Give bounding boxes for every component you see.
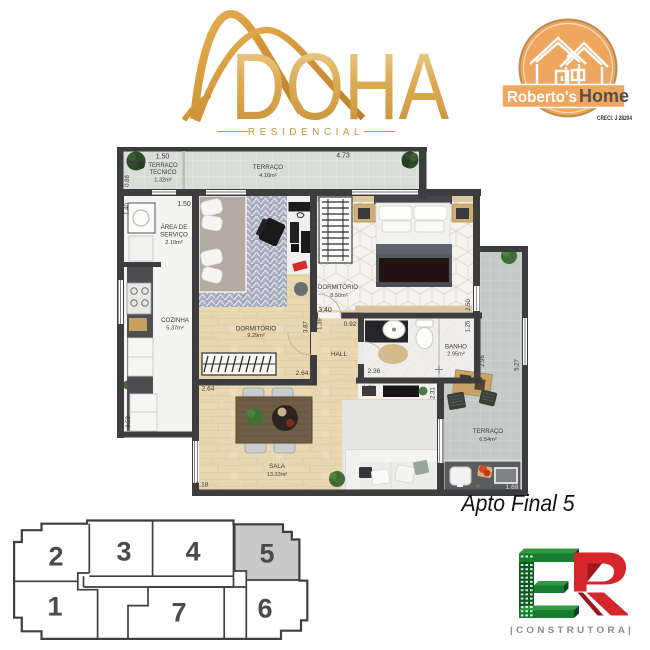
svg-text:ÁREA DE: ÁREA DE xyxy=(161,224,188,231)
svg-text:TERRAÇO: TERRAÇO xyxy=(473,428,503,435)
svg-text:13.33m²: 13.33m² xyxy=(267,472,288,478)
svg-text:1.50: 1.50 xyxy=(177,201,191,208)
svg-text:RESIDENCIAL: RESIDENCIAL xyxy=(248,127,364,138)
svg-text:2.10m²: 2.10m² xyxy=(165,240,183,246)
svg-text:5.27: 5.27 xyxy=(515,359,521,371)
svg-text:|CONSTRUTORA|: |CONSTRUTORA| xyxy=(510,625,634,636)
svg-text:2.96: 2.96 xyxy=(480,355,486,367)
svg-text:1.50: 1.50 xyxy=(156,154,170,161)
svg-text:TECNICO: TECNICO xyxy=(150,170,177,176)
svg-text:HALL: HALL xyxy=(331,351,348,358)
svg-text:SALA: SALA xyxy=(269,463,286,470)
svg-text:BANHO: BANHO xyxy=(445,344,467,351)
svg-text:SERVIÇO: SERVIÇO xyxy=(160,232,188,239)
svg-text:1.32m²: 1.32m² xyxy=(154,178,172,184)
svg-text:COZINHA: COZINHA xyxy=(161,317,190,324)
svg-text:0.92: 0.92 xyxy=(344,321,357,328)
svg-text:1.40: 1.40 xyxy=(125,203,131,215)
svg-text:0.90: 0.90 xyxy=(484,247,497,254)
svg-text:1.25: 1.25 xyxy=(466,320,472,332)
svg-text:4.16m²: 4.16m² xyxy=(259,173,277,179)
svg-text:7: 7 xyxy=(171,598,186,628)
svg-text:1.39: 1.39 xyxy=(318,318,324,330)
svg-text:4: 4 xyxy=(185,537,200,567)
svg-text:5: 5 xyxy=(259,539,274,569)
svg-text:Home: Home xyxy=(579,85,629,106)
svg-text:2.95m²: 2.95m² xyxy=(447,352,465,358)
svg-text:3.58: 3.58 xyxy=(126,416,132,428)
svg-text:3: 3 xyxy=(116,537,131,567)
svg-text:TERRAÇO: TERRAÇO xyxy=(253,164,283,171)
svg-text:2.50: 2.50 xyxy=(466,299,472,311)
svg-text:CRECI: J 28204: CRECI: J 28204 xyxy=(597,116,633,122)
svg-text:5.37m²: 5.37m² xyxy=(166,326,184,332)
svg-text:2: 2 xyxy=(48,542,63,572)
svg-text:DORMITÓRIO: DORMITÓRIO xyxy=(236,326,276,333)
svg-text:9.29m²: 9.29m² xyxy=(247,333,265,339)
svg-text:0.88: 0.88 xyxy=(125,175,131,187)
svg-text:Roberto's: Roberto's xyxy=(507,89,577,106)
svg-text:8.50m²: 8.50m² xyxy=(330,293,348,299)
svg-text:2.36: 2.36 xyxy=(368,368,381,375)
svg-text:1: 1 xyxy=(47,592,62,622)
svg-text:2.31: 2.31 xyxy=(431,387,437,399)
svg-text:3,40: 3,40 xyxy=(318,307,332,314)
svg-text:2.64: 2.64 xyxy=(296,370,309,377)
svg-text:DOHA: DOHA xyxy=(231,34,449,140)
svg-text:DORMITÓRIO: DORMITÓRIO xyxy=(318,284,358,291)
svg-text:3.87: 3.87 xyxy=(304,321,310,333)
svg-text:4.73: 4.73 xyxy=(336,153,350,160)
svg-text:TERRAÇO: TERRAÇO xyxy=(148,163,178,169)
svg-text:2.64: 2.64 xyxy=(202,386,215,393)
svg-text:6: 6 xyxy=(257,594,272,624)
svg-text:Apto Final 5: Apto Final 5 xyxy=(460,490,576,516)
svg-text:6.54m²: 6.54m² xyxy=(479,437,497,443)
svg-text:5.18: 5.18 xyxy=(196,482,209,489)
svg-text:1.70: 1.70 xyxy=(363,385,376,392)
